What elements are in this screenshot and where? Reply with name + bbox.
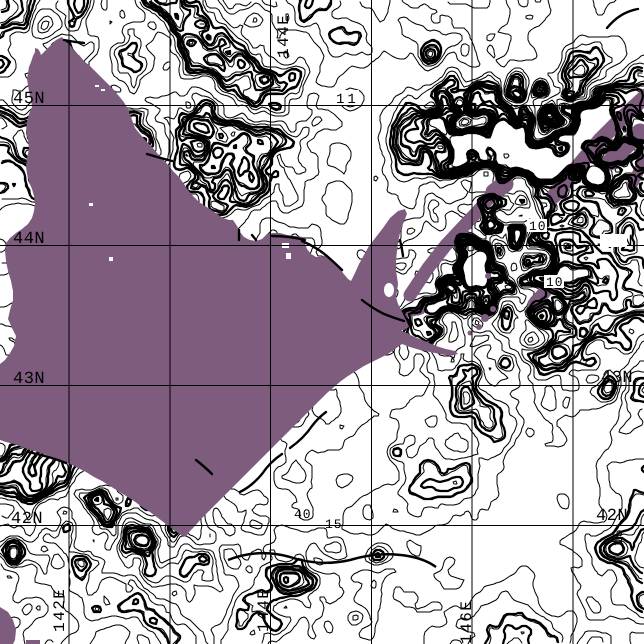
svg-text:42N: 42N (596, 507, 628, 526)
svg-text:40: 40 (294, 507, 312, 522)
svg-text:44N: 44N (13, 230, 45, 249)
svg-text:142E: 142E (51, 588, 69, 632)
svg-text:45N: 45N (13, 90, 45, 109)
svg-text:144E: 144E (255, 588, 273, 632)
svg-text:144E: 144E (275, 14, 293, 58)
svg-text:10: 10 (529, 219, 547, 234)
svg-text:11: 11 (336, 92, 359, 108)
svg-text:15: 15 (325, 517, 343, 532)
svg-text:10: 10 (546, 275, 564, 290)
svg-text:146E: 146E (458, 600, 476, 644)
svg-text:43N: 43N (601, 369, 633, 388)
svg-text:15: 15 (611, 528, 626, 546)
svg-text:42N: 42N (11, 510, 43, 529)
svg-text:43N: 43N (13, 370, 45, 389)
